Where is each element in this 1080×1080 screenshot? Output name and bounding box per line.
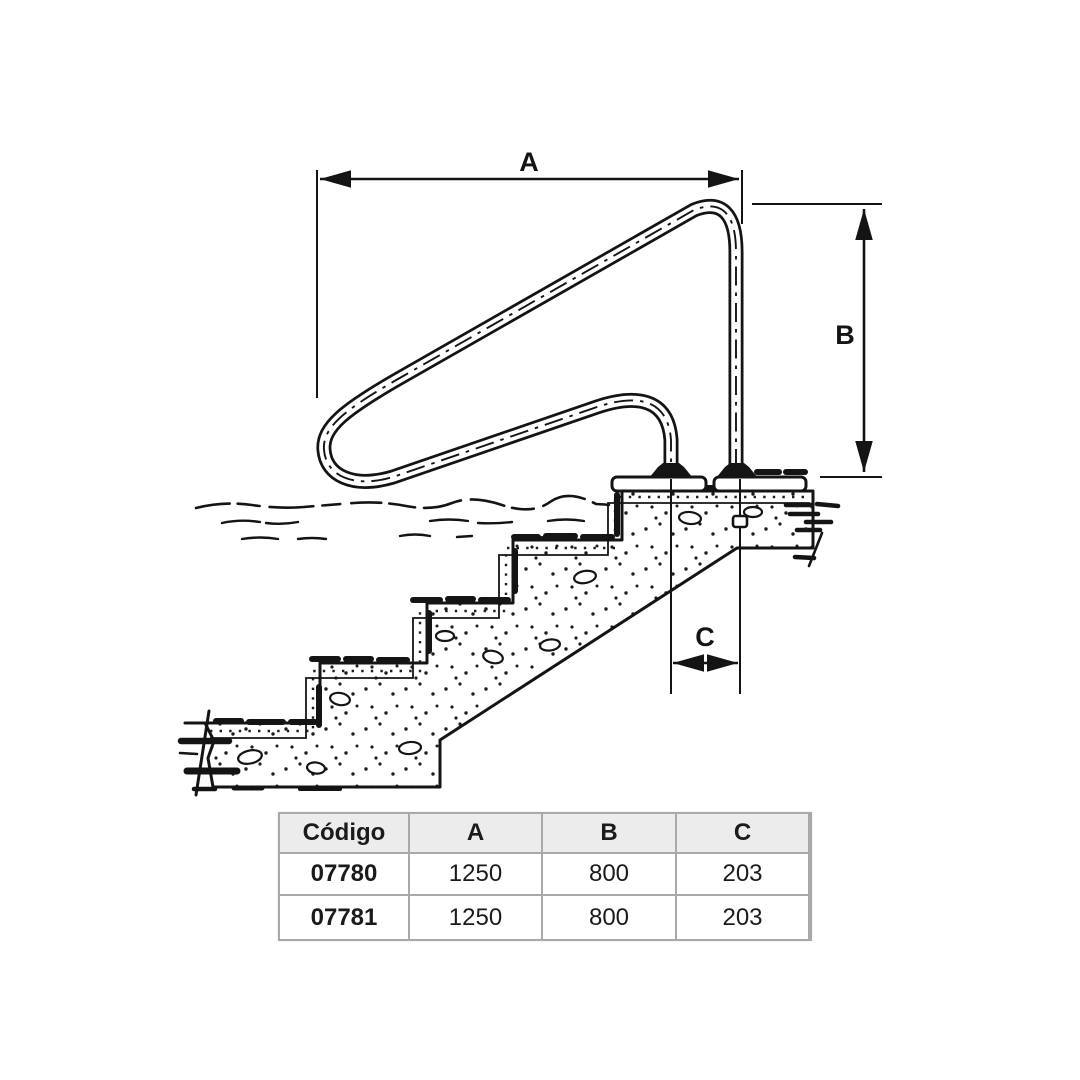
water-line-2e	[548, 520, 584, 522]
coping-joint	[706, 485, 714, 491]
concrete-profile	[205, 491, 813, 787]
c-dim-label: C	[695, 622, 715, 652]
dimension-a: A	[317, 147, 742, 398]
spec-row2-a: 1250	[410, 896, 541, 939]
spec-row1-b: 800	[543, 854, 675, 894]
handrail	[324, 206, 758, 481]
diagram-page: C A B Código A B C 07780	[0, 0, 1080, 1080]
deck-coping	[612, 477, 806, 491]
water-line-2d	[478, 522, 512, 523]
coping-slab-left	[612, 477, 706, 491]
water-line-3d	[457, 536, 472, 537]
water-line-3c	[400, 535, 430, 537]
water-line-1	[196, 496, 609, 509]
coping-slab-right	[714, 477, 806, 491]
spec-row2-codigo: 07781	[280, 896, 408, 939]
dimension-b: B	[752, 204, 882, 477]
water-line-2	[222, 521, 260, 523]
spec-row1-a: 1250	[410, 854, 541, 894]
flange-right	[716, 463, 758, 478]
spec-row1-codigo: 07780	[280, 854, 408, 894]
flange-left	[649, 463, 693, 478]
anchor-detail	[733, 516, 747, 527]
spec-table: Código A B C 07780 1250 800 203 07781 12…	[278, 812, 812, 941]
a-dim-label: A	[519, 147, 539, 177]
water-line-3b	[298, 538, 326, 539]
spec-header-c: C	[677, 814, 808, 852]
water-line-3	[242, 538, 278, 540]
stairs-section	[180, 472, 813, 795]
spec-row2-c: 203	[677, 896, 808, 939]
spec-header-a: A	[410, 814, 541, 852]
b-dim-label: B	[835, 320, 855, 350]
water-line-2b	[266, 522, 298, 524]
spec-header-codigo: Código	[280, 814, 408, 852]
spec-header-b: B	[543, 814, 675, 852]
spec-row1-c: 203	[677, 854, 808, 894]
handrail-tube-core	[324, 206, 736, 481]
spec-row2-b: 800	[543, 896, 675, 939]
water-line-2c	[430, 520, 468, 522]
